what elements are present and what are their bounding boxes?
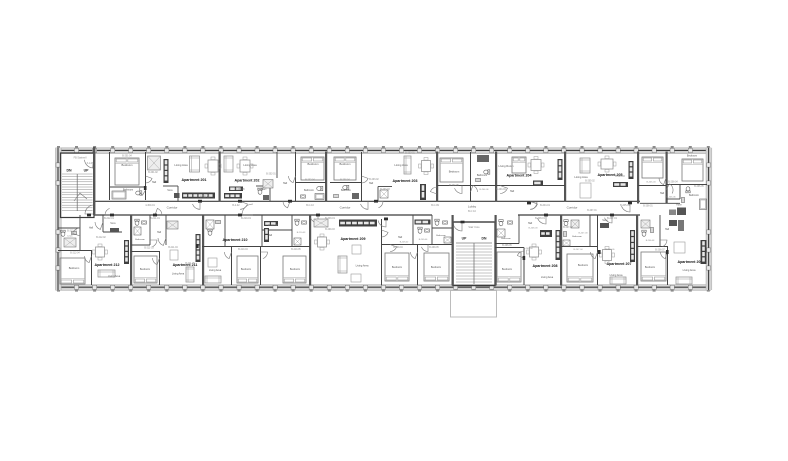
svg-text:B-210-04: B-210-04 xyxy=(238,249,248,251)
svg-text:Apartment 208: Apartment 208 xyxy=(533,264,558,268)
svg-text:Apartment 207: Apartment 207 xyxy=(607,262,632,266)
svg-text:Living Area: Living Area xyxy=(172,273,185,276)
svg-text:DN: DN xyxy=(482,237,487,241)
svg-text:B-2-02: B-2-02 xyxy=(232,204,240,207)
svg-text:B-210-03: B-210-03 xyxy=(297,232,306,234)
svg-text:B-208-04: B-208-04 xyxy=(524,248,534,250)
svg-text:Lobby: Lobby xyxy=(468,205,477,209)
svg-text:B-201-04: B-201-04 xyxy=(122,156,132,158)
svg-text:Hall: Hall xyxy=(510,190,515,193)
svg-text:B-203-04: B-203-04 xyxy=(340,180,350,182)
svg-text:Store: Store xyxy=(110,222,116,225)
svg-text:B-203-01: B-203-01 xyxy=(405,153,415,155)
svg-text:B-206-04: B-206-04 xyxy=(668,182,678,184)
svg-text:B-206-05: B-206-05 xyxy=(694,186,704,188)
svg-text:Hall: Hall xyxy=(398,236,403,239)
svg-text:B-206-07: B-206-07 xyxy=(655,250,665,252)
svg-text:B-205-02: B-205-02 xyxy=(585,181,595,183)
svg-text:B-210-05: B-210-05 xyxy=(291,249,301,251)
svg-text:B-210-01: B-210-01 xyxy=(241,217,252,220)
svg-text:Apartment 212: Apartment 212 xyxy=(95,263,120,267)
svg-text:Bedroom: Bedroom xyxy=(241,268,251,271)
svg-text:Living Area: Living Area xyxy=(209,269,222,272)
svg-text:B-212-03: B-212-03 xyxy=(67,231,77,233)
svg-text:B-204-05: B-204-05 xyxy=(449,185,459,187)
svg-text:B-212-01: B-212-01 xyxy=(104,217,115,220)
svg-text:B-209-02: B-209-02 xyxy=(400,242,409,244)
svg-text:Apartment 209: Apartment 209 xyxy=(341,237,366,241)
svg-text:B-208-01: B-208-01 xyxy=(535,217,546,220)
svg-text:Bathroom: Bathroom xyxy=(304,189,314,192)
svg-text:Hall: Hall xyxy=(283,182,288,185)
svg-text:B-209-06: B-209-06 xyxy=(419,239,428,241)
svg-text:B-208-03: B-208-03 xyxy=(529,228,539,230)
svg-text:Apartment 210: Apartment 210 xyxy=(223,238,248,242)
svg-text:B-202-01: B-202-01 xyxy=(266,174,276,176)
svg-text:UP: UP xyxy=(462,237,467,241)
svg-text:Corridor: Corridor xyxy=(567,206,578,210)
svg-text:Hall: Hall xyxy=(152,181,157,184)
svg-text:B-C-10: B-C-10 xyxy=(306,204,314,207)
svg-text:B-203-03: B-203-03 xyxy=(380,189,390,191)
svg-text:B-212-02: B-212-02 xyxy=(96,237,106,239)
svg-text:Bedroom: Bedroom xyxy=(449,170,460,174)
svg-text:B-209-05: B-209-05 xyxy=(429,247,439,249)
svg-text:Linen: Linen xyxy=(67,236,73,238)
svg-text:B-202-02: B-202-02 xyxy=(257,189,267,191)
svg-text:Hall: Hall xyxy=(665,228,670,231)
svg-text:Bathroom: Bathroom xyxy=(501,237,511,240)
svg-text:B-212-04: B-212-04 xyxy=(70,253,80,255)
svg-text:4-300-01: 4-300-01 xyxy=(145,204,155,207)
svg-text:Apartment 202: Apartment 202 xyxy=(235,179,260,183)
svg-text:Living Area: Living Area xyxy=(610,273,623,277)
svg-text:B-207-01: B-207-01 xyxy=(587,210,597,212)
svg-text:B-211-03: B-211-03 xyxy=(144,248,154,250)
svg-text:B-201-02: B-201-02 xyxy=(148,172,158,174)
svg-text:Living Area: Living Area xyxy=(574,175,588,179)
svg-text:B-202-04: B-202-04 xyxy=(305,180,315,182)
svg-text:Living Area: Living Area xyxy=(683,268,696,272)
svg-text:Bedroom: Bedroom xyxy=(502,268,512,271)
svg-text:Stair Core: Stair Core xyxy=(468,226,480,229)
svg-text:B-204-04: B-204-04 xyxy=(496,189,506,191)
svg-text:B-211-04: B-211-04 xyxy=(168,247,178,249)
svg-text:Hall: Hall xyxy=(528,222,533,225)
svg-text:Bathroom: Bathroom xyxy=(436,234,446,237)
svg-text:B-206-01: B-206-01 xyxy=(643,206,653,208)
svg-text:Living Area: Living Area xyxy=(541,276,554,279)
svg-text:DN: DN xyxy=(66,169,72,173)
svg-text:B-211-05: B-211-05 xyxy=(185,263,195,265)
svg-text:Living Area: Living Area xyxy=(108,275,121,278)
svg-text:Hall: Hall xyxy=(660,192,665,195)
svg-text:Hall: Hall xyxy=(89,227,94,230)
svg-text:B-207-05: B-207-05 xyxy=(606,249,616,251)
svg-text:Bedroom: Bedroom xyxy=(578,264,588,267)
svg-text:FB Stairwell: FB Stairwell xyxy=(74,157,87,160)
svg-text:B-206-08: B-206-08 xyxy=(646,240,655,242)
svg-text:Hall: Hall xyxy=(369,182,374,185)
svg-text:B-205-03: B-205-03 xyxy=(615,176,625,178)
svg-text:B-211-01: B-211-01 xyxy=(150,217,160,220)
svg-text:B-C-09: B-C-09 xyxy=(431,204,439,207)
svg-text:Corridor: Corridor xyxy=(340,206,351,210)
svg-text:Hall: Hall xyxy=(157,231,162,234)
svg-text:Bedroom: Bedroom xyxy=(392,266,402,269)
svg-text:Living Area: Living Area xyxy=(174,163,188,167)
svg-text:B-206-06: B-206-06 xyxy=(667,197,677,199)
svg-text:Bedroom: Bedroom xyxy=(69,266,80,270)
svg-text:Robe: Robe xyxy=(676,205,682,207)
svg-text:Store: Store xyxy=(167,189,173,192)
svg-text:Bathroom: Bathroom xyxy=(572,235,582,238)
svg-text:B-209-04: B-209-04 xyxy=(393,247,403,249)
svg-text:UP: UP xyxy=(84,169,90,173)
svg-text:B-205-04: B-205-04 xyxy=(647,182,657,184)
svg-text:B-210-02: B-210-02 xyxy=(268,225,278,227)
svg-text:B-204-06: B-204-06 xyxy=(480,189,490,191)
svg-text:B-204-01: B-204-01 xyxy=(540,204,551,207)
svg-text:Living Area: Living Area xyxy=(356,264,369,268)
svg-text:Apartment 204: Apartment 204 xyxy=(507,174,532,178)
svg-text:B-201-01: B-201-01 xyxy=(200,197,210,199)
svg-text:B-207-02: B-207-02 xyxy=(563,227,573,229)
svg-text:B-203-02: B-203-02 xyxy=(369,179,379,181)
svg-text:Bathroom: Bathroom xyxy=(477,174,487,177)
svg-text:Apartment 201: Apartment 201 xyxy=(182,178,207,182)
svg-text:Bathroom: Bathroom xyxy=(135,238,145,241)
svg-text:Corridor: Corridor xyxy=(167,206,178,210)
svg-text:B-207-03: B-207-03 xyxy=(579,233,589,235)
svg-text:Bathroom: Bathroom xyxy=(689,194,699,197)
svg-text:Bedroom: Bedroom xyxy=(140,268,150,271)
svg-text:B-C 10: B-C 10 xyxy=(468,210,476,213)
svg-text:Apartment 203: Apartment 203 xyxy=(393,179,418,183)
svg-text:Bedroom: Bedroom xyxy=(290,268,300,271)
svg-text:B-207-04: B-207-04 xyxy=(574,249,584,251)
svg-text:B-209-03: B-209-03 xyxy=(325,229,335,231)
svg-text:B-202-05: B-202-05 xyxy=(235,189,245,191)
svg-text:Bedroom: Bedroom xyxy=(645,266,655,269)
svg-text:Bedroom: Bedroom xyxy=(687,155,697,158)
svg-text:B-207-01: B-207-01 xyxy=(607,217,618,220)
svg-text:Bedroom: Bedroom xyxy=(431,266,441,269)
svg-text:B-208-05: B-208-05 xyxy=(502,245,512,247)
svg-text:Apartment 206: Apartment 206 xyxy=(678,260,703,264)
